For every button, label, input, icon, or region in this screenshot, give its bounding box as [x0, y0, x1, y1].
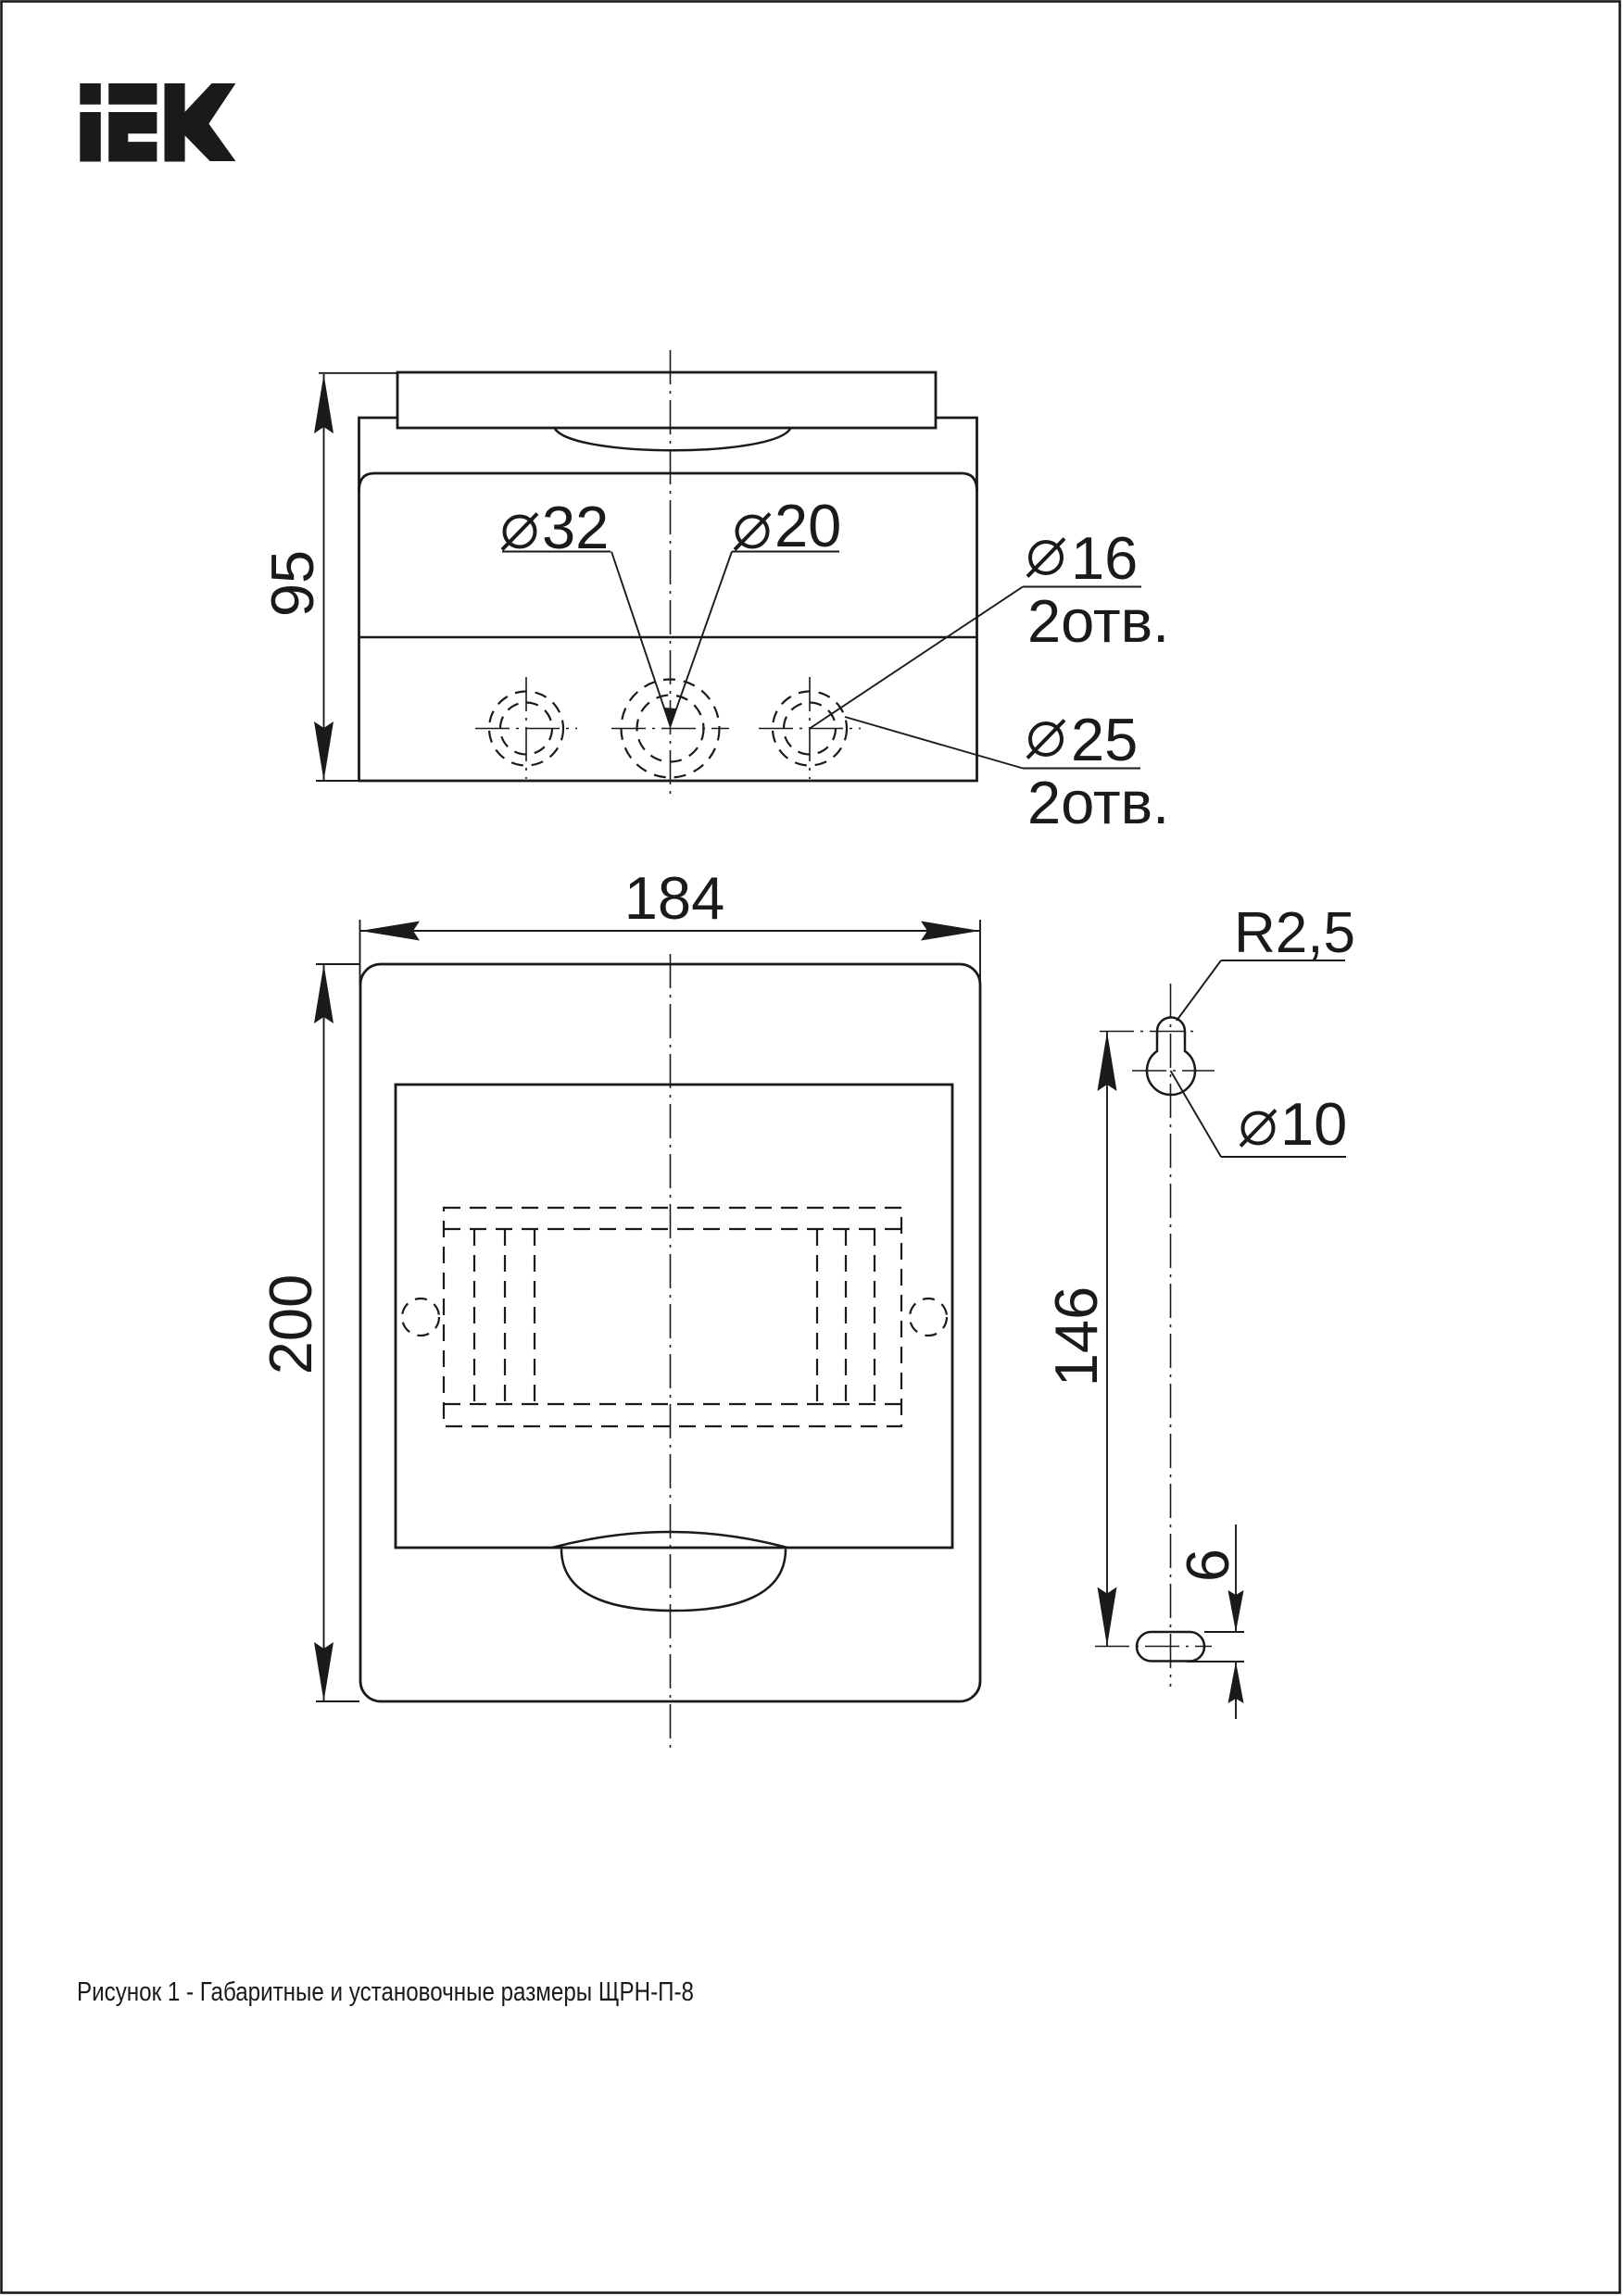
svg-text:2отв.: 2отв.	[1027, 769, 1169, 836]
svg-text:10: 10	[1280, 1090, 1347, 1158]
svg-text:16: 16	[1071, 524, 1138, 592]
svg-text:25: 25	[1071, 706, 1138, 773]
svg-text:Рисунок 1 - Габаритные и устан: Рисунок 1 - Габаритные и установочные ра…	[77, 1977, 694, 2007]
svg-text:20: 20	[774, 492, 841, 559]
svg-text:6: 6	[1174, 1549, 1241, 1582]
svg-text:146: 146	[1042, 1286, 1110, 1386]
svg-text:95: 95	[258, 550, 326, 617]
svg-text:R2,5: R2,5	[1234, 901, 1355, 965]
svg-text:2отв.: 2отв.	[1027, 587, 1169, 655]
svg-text:200: 200	[257, 1274, 324, 1374]
svg-text:184: 184	[624, 864, 724, 932]
